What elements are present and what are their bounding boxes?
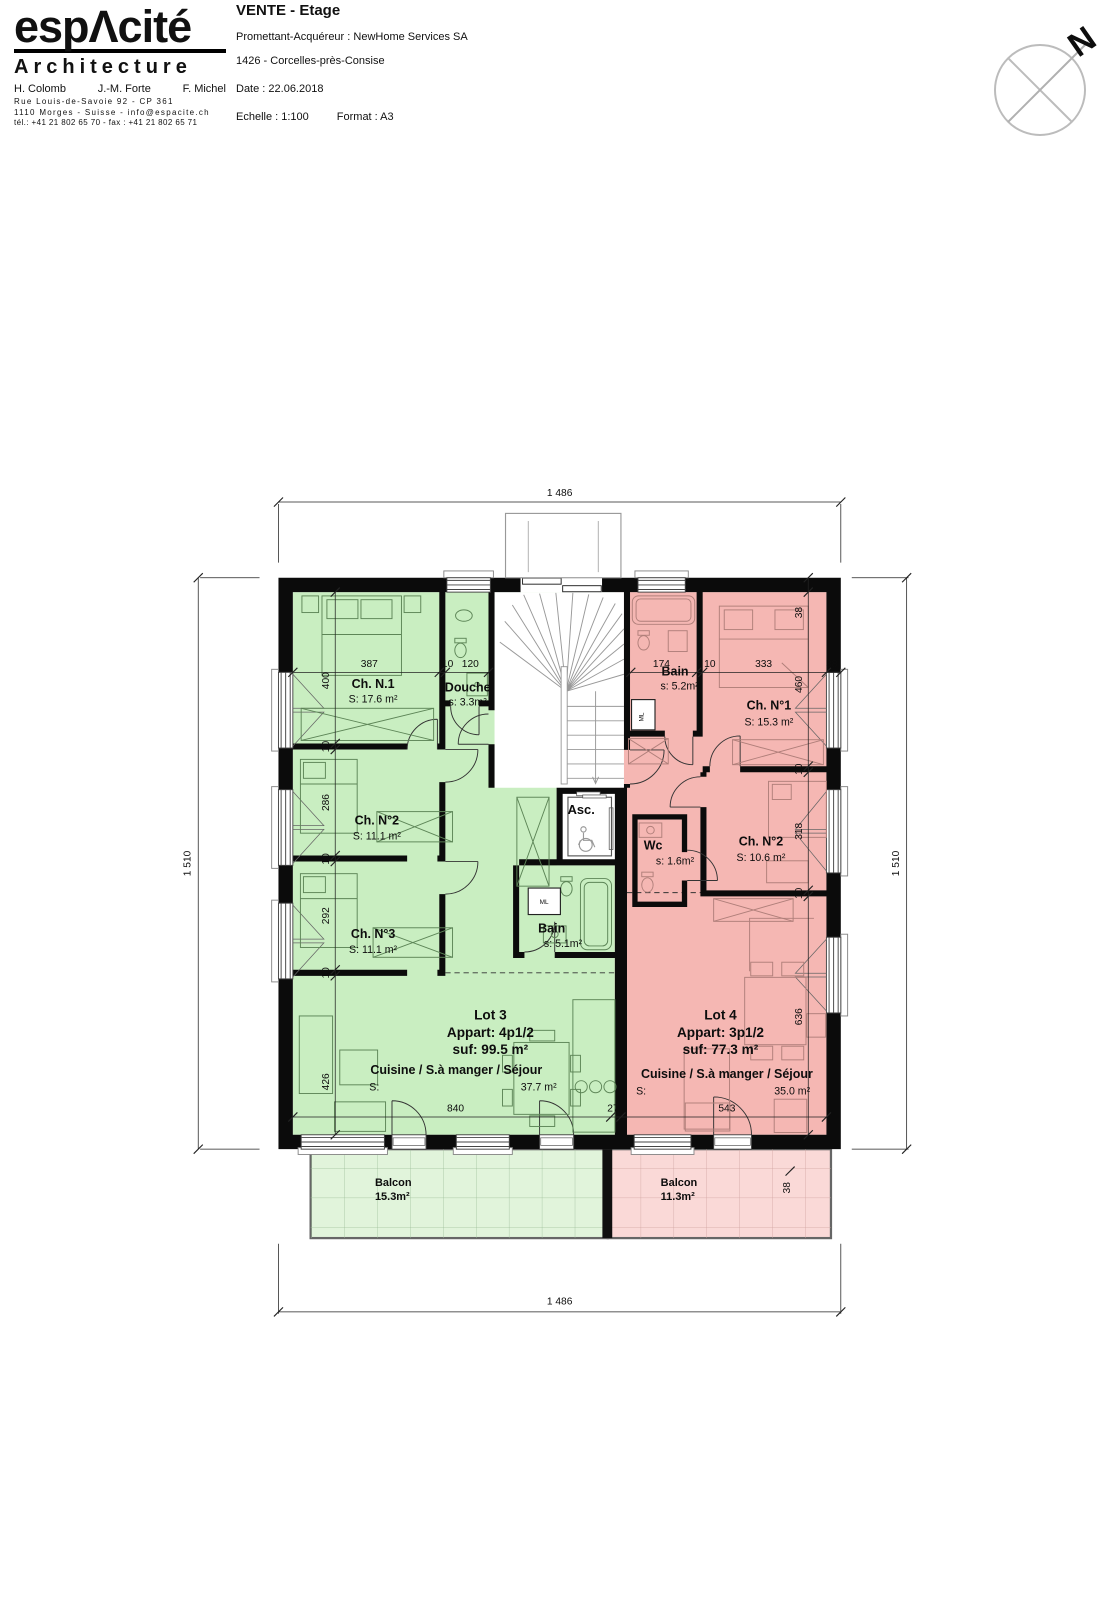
dim-10b: 10 (704, 659, 716, 670)
dim-400: 400 (321, 672, 332, 689)
client-line: Promettant-Acquéreur : NewHome Services … (236, 31, 468, 43)
sheet-title: VENTE - Etage (236, 2, 468, 19)
room-ch1-lot3: Ch. N.1 (352, 677, 395, 691)
dim-387: 387 (361, 659, 378, 670)
balcon-lot3-area: 15.3m² (375, 1191, 410, 1203)
room-douche-area: s: 3.3m² (449, 697, 488, 709)
location-line: 1426 - Corcelles-près-Consise (236, 55, 468, 67)
room-ch1-lot3-area: S: 17.6 m² (349, 694, 398, 706)
logo: espΛcité (14, 4, 226, 53)
lot4-surface: suf: 77.3 m² (683, 1042, 759, 1057)
entrance-vestibule (506, 513, 621, 577)
ml-label-lot3: ML (540, 899, 549, 906)
partners-row: H. Colomb J.-M. Forte F. Michel (14, 83, 226, 95)
dim-bottom: 1 486 (547, 1296, 573, 1307)
room-bain-lot4: Bain (662, 664, 689, 678)
dim-543: 543 (718, 1103, 735, 1114)
north-label: N (1061, 19, 1103, 64)
address-line-2: 1110 Morges - Suisse - info@espacite.ch (14, 108, 226, 117)
dim-286: 286 (321, 794, 332, 811)
dim-10c: 10 (321, 741, 332, 753)
room-ch2-lot3-area: S: 11.1 m² (353, 831, 401, 843)
lot4-title: Lot 4 (704, 1008, 737, 1023)
phone-line: tél.: +41 21 802 65 70 - fax : +41 21 80… (14, 118, 226, 127)
balcony-lot4-tiles (608, 1149, 831, 1238)
date-line: Date : 22.06.2018 (236, 83, 323, 95)
balcony-lot3-tiles (311, 1149, 608, 1238)
room-ch1-lot4: Ch. N°1 (747, 698, 792, 712)
title-block: VENTE - Etage Promettant-Acquéreur : New… (236, 2, 468, 123)
north-arrow: N (988, 16, 1112, 140)
partner-1: H. Colomb (14, 83, 66, 95)
dim-38c: 38 (782, 1182, 793, 1194)
dim-10a: 10 (442, 659, 454, 670)
room-ch1-lot4-area: S: 15.3 m² (745, 716, 794, 728)
lot4-type: Appart: 3p1/2 (677, 1025, 764, 1040)
lot3-cuisine-area: 37.7 m² (521, 1082, 557, 1094)
date-row: Date : 22.06.2018 (236, 83, 468, 95)
dim-426: 426 (321, 1073, 332, 1090)
partner-3: F. Michel (183, 83, 226, 95)
dim-120: 120 (462, 659, 479, 670)
dim-636: 636 (794, 1008, 805, 1025)
dim-292: 292 (321, 907, 332, 924)
room-bain-lot3: Bain (538, 922, 565, 936)
dim-333: 333 (755, 659, 772, 670)
floor-plan: 1 486 1 486 1 510 1 510 387 10 120 174 1… (180, 468, 937, 1380)
balcon-lot3-label: Balcon (375, 1177, 412, 1189)
room-douche: Douche (445, 680, 491, 694)
dim-top: 1 486 (547, 488, 573, 499)
address-line-1: Rue Louis-de-Savoie 92 - CP 361 (14, 97, 226, 106)
room-ch3-lot3-area: S: 11.1 m² (349, 944, 397, 956)
lot4-cuisine: Cuisine / S.à manger / Séjour (641, 1067, 813, 1081)
lot3-cuisine: Cuisine / S.à manger / Séjour (370, 1063, 542, 1077)
dim-460: 460 (794, 676, 805, 693)
dim-10d: 10 (321, 853, 332, 865)
scale-row: Echelle : 1:100 Format : A3 (236, 111, 468, 123)
lot3-cuisine-s: S: (369, 1082, 379, 1094)
format-line: Format : A3 (337, 111, 394, 123)
dim-10e: 10 (321, 967, 332, 979)
room-ch2-lot4: Ch. N°2 (739, 835, 784, 849)
room-bain-lot4-area: s: 5.2m² (660, 681, 699, 693)
lot4-cuisine-s: S: (636, 1085, 646, 1097)
balcony-divider (602, 1149, 612, 1238)
scale-line: Echelle : 1:100 (236, 111, 309, 123)
dim-10g: 10 (794, 887, 805, 899)
partner-2: J.-M. Forte (98, 83, 151, 95)
lot3-surface: suf: 99.5 m² (453, 1042, 529, 1057)
dim-38b: 38 (794, 607, 805, 619)
drawing-sheet: espΛcité Architecture H. Colomb J.-M. Fo… (0, 0, 1117, 1600)
dim-38a: 38 (826, 659, 838, 670)
logo-block: espΛcité Architecture H. Colomb J.-M. Fo… (14, 4, 226, 127)
dim-10f: 10 (794, 763, 805, 775)
room-bain-lot3-area: s: 5.1m² (544, 938, 583, 950)
dim-right: 1 510 (891, 850, 902, 876)
elevator-label: Asc. (568, 802, 595, 817)
room-wc: Wc (644, 838, 663, 852)
dim-27: 27 (607, 1103, 619, 1114)
lot3-type: Appart: 4p1/2 (447, 1025, 534, 1040)
room-ch2-lot3: Ch. N°2 (355, 813, 400, 827)
room-ch3-lot3: Ch. N°3 (351, 927, 396, 941)
dim-left: 1 510 (183, 850, 194, 876)
dim-318: 318 (794, 822, 805, 839)
room-ch2-lot4-area: S: 10.6 m² (737, 852, 786, 864)
logo-subtitle: Architecture (14, 56, 226, 79)
lot4-cuisine-area: 35.0 m² (774, 1085, 810, 1097)
balcon-lot4-label: Balcon (661, 1177, 698, 1189)
ml-label-lot4: ML (638, 712, 645, 721)
dim-840: 840 (447, 1103, 464, 1114)
balcon-lot4-area: 11.3m² (661, 1191, 695, 1203)
lot3-title: Lot 3 (474, 1008, 507, 1023)
room-wc-area: s: 1.6m² (656, 856, 695, 868)
